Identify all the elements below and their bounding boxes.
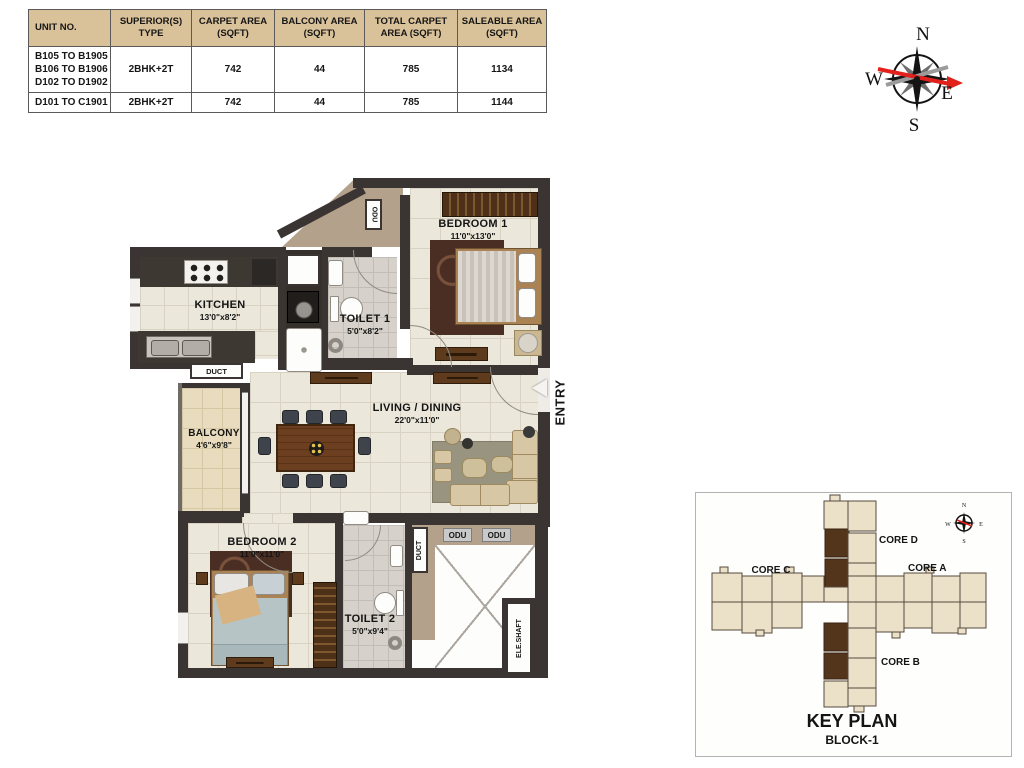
dining-chair-top-1 bbox=[282, 410, 299, 424]
armchair-2 bbox=[434, 468, 452, 482]
odu-top-box: ODU bbox=[365, 199, 382, 230]
duct-kitchen-label: DUCT bbox=[204, 367, 229, 376]
kitchen-floor-patch bbox=[255, 331, 278, 359]
odu-box-1: ODU bbox=[443, 528, 472, 542]
wall-lobby-right bbox=[535, 525, 548, 678]
sink-bowl-right bbox=[182, 340, 210, 356]
duct-box-kitchen: DUCT bbox=[190, 363, 243, 379]
dining-chair-bottom-1 bbox=[282, 474, 299, 488]
entry-label-box: ENTRY bbox=[548, 360, 572, 444]
bedroom2-window bbox=[178, 612, 188, 644]
kitchen-label: KITCHEN 13'0"x8'2" bbox=[160, 299, 280, 322]
passage-basin bbox=[343, 511, 369, 525]
key-plan-compass: N S W E bbox=[945, 503, 983, 545]
toilet2-wc-bowl bbox=[374, 592, 396, 614]
odu-zone-top bbox=[282, 180, 403, 247]
coffee-table-1 bbox=[462, 458, 487, 478]
dining-chair-top-2 bbox=[306, 410, 323, 424]
core-b-label: CORE B bbox=[881, 657, 920, 668]
bedroom2-nightstand-2 bbox=[292, 572, 304, 585]
key-plan-subtitle: BLOCK-1 bbox=[825, 733, 879, 747]
kitchen-window-1 bbox=[130, 278, 140, 304]
planter bbox=[462, 438, 473, 449]
sofa-corner bbox=[506, 480, 538, 504]
entry-label: ENTRY bbox=[553, 379, 568, 425]
floor-plan-page: UNIT NO. SUPERIOR(S)TYPE CARPET AREA(SQF… bbox=[0, 0, 1024, 768]
bedroom2-nightstand-1 bbox=[196, 572, 208, 585]
key-plan-compass-s: S bbox=[962, 539, 965, 545]
toilet1-basin bbox=[328, 260, 343, 286]
odu-1-label: ODU bbox=[449, 531, 467, 540]
toilet1-shower-head bbox=[328, 338, 343, 353]
core-a-label: CORE A bbox=[908, 563, 947, 574]
console-toilet1 bbox=[310, 372, 372, 384]
armchair-1 bbox=[434, 450, 452, 464]
sofa-bottom bbox=[450, 484, 510, 506]
console-entry bbox=[433, 372, 491, 384]
core-d-label: CORE D bbox=[879, 535, 918, 546]
toilet2-shower-head bbox=[388, 636, 402, 650]
kitchen-hob bbox=[184, 260, 228, 284]
key-plan-compass-e: E bbox=[979, 522, 983, 528]
dining-chair-bottom-2 bbox=[306, 474, 323, 488]
kitchen-window-2 bbox=[130, 306, 140, 332]
toilet2-label: TOILET 2 5'0"x9'4" bbox=[310, 613, 430, 636]
lobby-tan-top bbox=[412, 525, 535, 545]
toilet2-geyser bbox=[390, 545, 403, 567]
bedroom1-wardrobe bbox=[442, 192, 538, 217]
entry-arrow bbox=[532, 379, 547, 397]
sink-bowl-left bbox=[151, 340, 179, 356]
bedroom1-pillow-2 bbox=[518, 288, 536, 318]
wall-lobby-top bbox=[412, 513, 538, 525]
bedroom1-pillow-1 bbox=[518, 253, 536, 283]
ele-shaft-label: ELE.SHAFT bbox=[516, 619, 523, 658]
duct-lobby-box: DUCT bbox=[412, 527, 428, 573]
floor-lamp bbox=[523, 426, 535, 438]
lobby-floor bbox=[412, 640, 435, 668]
wall-kitchen-top bbox=[130, 247, 282, 257]
toilet1-label: TOILET 1 5'0"x8'2" bbox=[305, 313, 425, 336]
wall-bedroom2-left bbox=[178, 518, 188, 670]
wall-toilet2-right bbox=[405, 523, 412, 668]
balcony-rail-bottom bbox=[178, 511, 244, 517]
dining-table bbox=[276, 424, 355, 472]
key-plan-title: KEY PLAN bbox=[807, 711, 898, 731]
bedroom2-label: BEDROOM 2 11'0"x11'0" bbox=[202, 536, 322, 559]
duct-lobby-label: DUCT bbox=[417, 540, 424, 559]
bedroom1-label: BEDROOM 1 11'0"x13'0" bbox=[413, 218, 533, 241]
balcony-rail-top bbox=[182, 383, 240, 388]
wall-bedroom1-left bbox=[400, 195, 410, 329]
key-plan-compass-n: N bbox=[962, 503, 967, 509]
dining-chair-top-3 bbox=[330, 410, 347, 424]
odu-top-label: ODU bbox=[370, 207, 377, 223]
kitchen-sink bbox=[146, 336, 212, 358]
kitchen-fridge bbox=[252, 259, 276, 285]
bedroom1-mattress bbox=[458, 251, 516, 322]
coffee-table-2 bbox=[491, 456, 513, 473]
ele-shaft-box: ELE.SHAFT bbox=[508, 604, 530, 672]
side-table-round bbox=[444, 428, 461, 445]
dining-centerpiece bbox=[309, 441, 324, 456]
balcony-label: BALCONY 4'6"x9'8" bbox=[154, 428, 274, 450]
wall-top bbox=[353, 178, 543, 188]
utility-shaft bbox=[286, 254, 320, 286]
bedroom2-bench bbox=[226, 657, 274, 668]
bedroom1-stool bbox=[518, 333, 538, 353]
bedroom2-pillow-2 bbox=[252, 573, 285, 595]
living-label: LIVING / DINING 22'0"x11'0" bbox=[352, 402, 482, 425]
key-plan-compass-w: W bbox=[945, 522, 951, 528]
dining-chair-right bbox=[358, 437, 371, 455]
core-c-label: CORE C bbox=[752, 565, 791, 576]
odu-2-label: ODU bbox=[488, 531, 506, 540]
key-plan: CORE C CORE D CORE A CORE B N S W E KEY … bbox=[695, 492, 1012, 757]
key-plan-drawing: CORE C CORE D CORE A CORE B N S W E KEY … bbox=[696, 493, 1011, 756]
wall-bottom bbox=[178, 668, 548, 678]
odu-box-2: ODU bbox=[482, 528, 511, 542]
dining-chair-bottom-3 bbox=[330, 474, 347, 488]
